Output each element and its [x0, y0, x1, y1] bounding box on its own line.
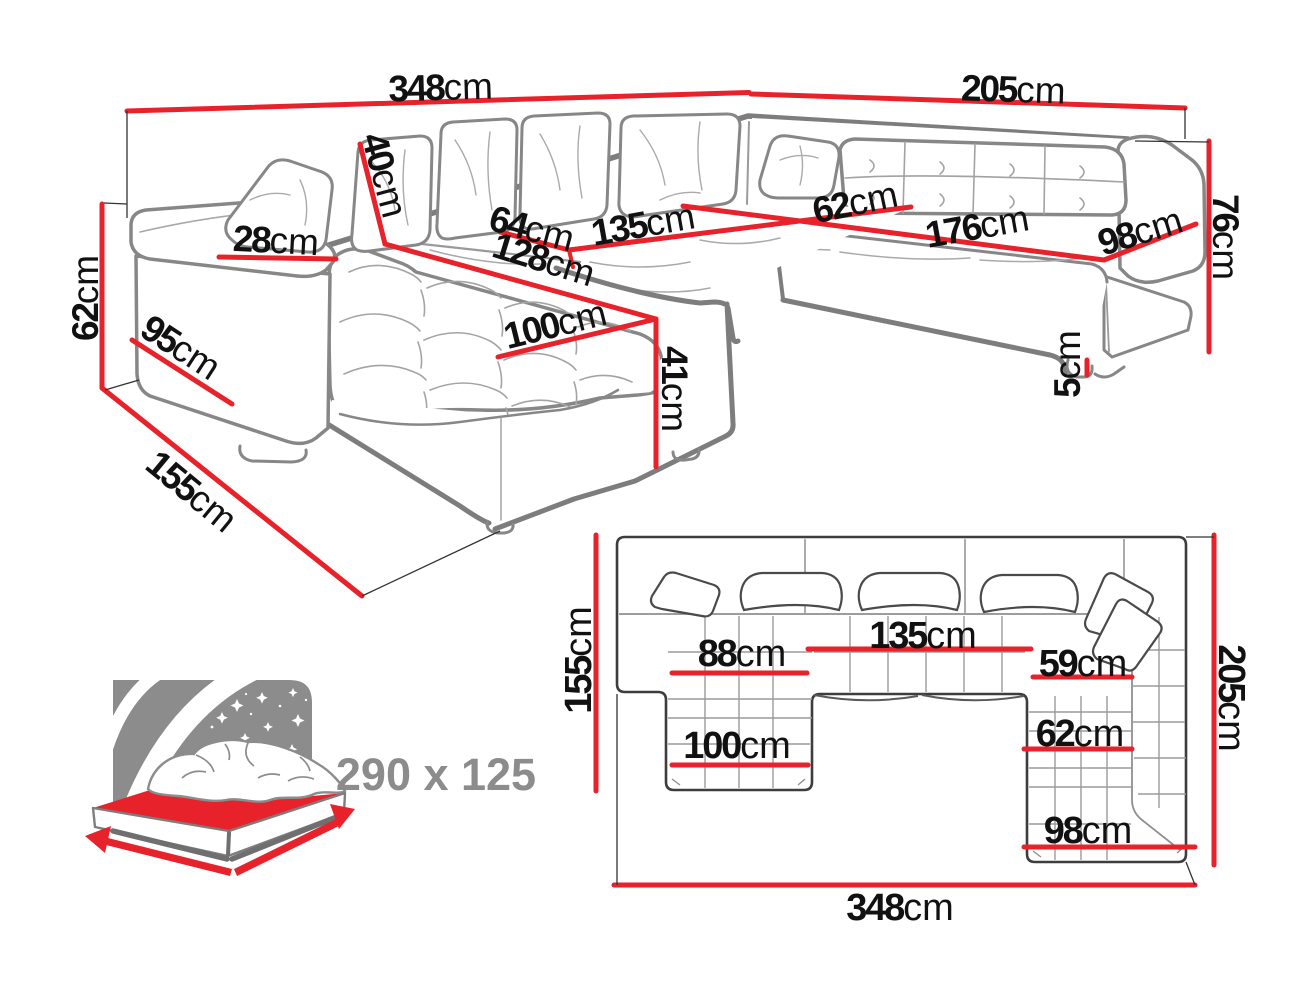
svg-text:88cm: 88cm [698, 633, 787, 675]
svg-text:59cm: 59cm [1039, 643, 1128, 685]
svg-text:5cm: 5cm [1047, 330, 1088, 398]
svg-text:76cm: 76cm [1205, 194, 1246, 280]
svg-text:28cm: 28cm [232, 218, 320, 263]
svg-text:62cm: 62cm [65, 255, 106, 341]
svg-text:155cm: 155cm [558, 606, 600, 713]
svg-text:205cm: 205cm [1210, 644, 1252, 751]
svg-text:135cm: 135cm [869, 615, 976, 657]
svg-text:205cm: 205cm [961, 67, 1067, 111]
svg-text:41cm: 41cm [654, 346, 695, 432]
svg-text:348cm: 348cm [846, 887, 953, 929]
svg-text:348cm: 348cm [388, 66, 494, 110]
svg-text:98cm: 98cm [1044, 810, 1133, 852]
svg-text:100cm: 100cm [683, 725, 790, 767]
svg-text:62cm: 62cm [1036, 713, 1125, 755]
svg-text:290 x 125: 290 x 125 [336, 749, 536, 800]
